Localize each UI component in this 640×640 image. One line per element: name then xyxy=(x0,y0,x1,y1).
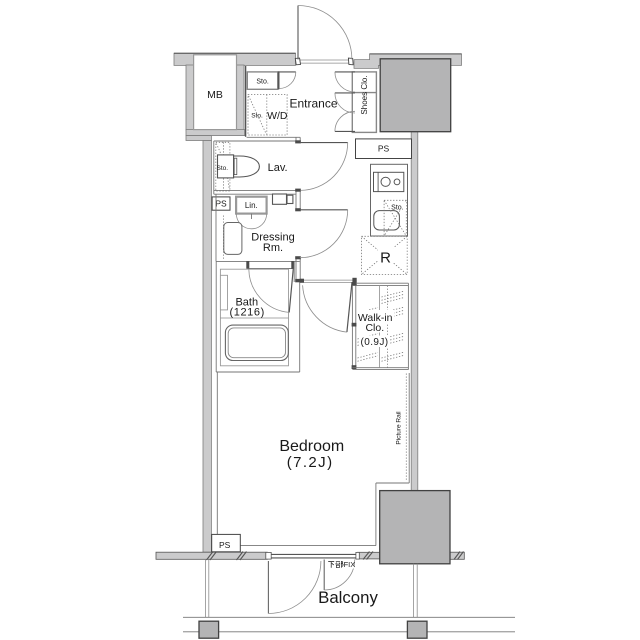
svg-text:Clo.: Clo. xyxy=(365,322,384,334)
svg-text:Lin.: Lin. xyxy=(245,201,258,210)
svg-text:PS: PS xyxy=(378,144,390,154)
svg-text:MB: MB xyxy=(207,89,223,101)
svg-text:(7.2J): (7.2J) xyxy=(287,454,334,471)
svg-text:Sto.: Sto. xyxy=(217,165,229,172)
svg-text:Picture Rail: Picture Rail xyxy=(395,411,402,445)
svg-text:(0.9J): (0.9J) xyxy=(361,337,389,348)
svg-text:PS: PS xyxy=(215,199,227,209)
svg-text:PS: PS xyxy=(219,540,231,550)
svg-text:(1216): (1216) xyxy=(229,306,264,318)
svg-text:Lav.: Lav. xyxy=(268,162,288,174)
svg-text:W/D: W/D xyxy=(267,110,288,122)
svg-text:FIX: FIX xyxy=(344,560,356,569)
svg-text:R: R xyxy=(380,249,391,266)
svg-text:Entrance: Entrance xyxy=(289,96,337,110)
svg-text:Bedroom: Bedroom xyxy=(279,438,344,455)
svg-text:Balcony: Balcony xyxy=(318,588,378,607)
svg-text:Rm.: Rm. xyxy=(263,242,283,254)
svg-text:Sto.: Sto. xyxy=(251,112,263,119)
svg-text:Sto.: Sto. xyxy=(391,204,404,211)
svg-text:Shoes Clo.: Shoes Clo. xyxy=(360,75,369,114)
svg-text:Sto.: Sto. xyxy=(256,78,269,85)
